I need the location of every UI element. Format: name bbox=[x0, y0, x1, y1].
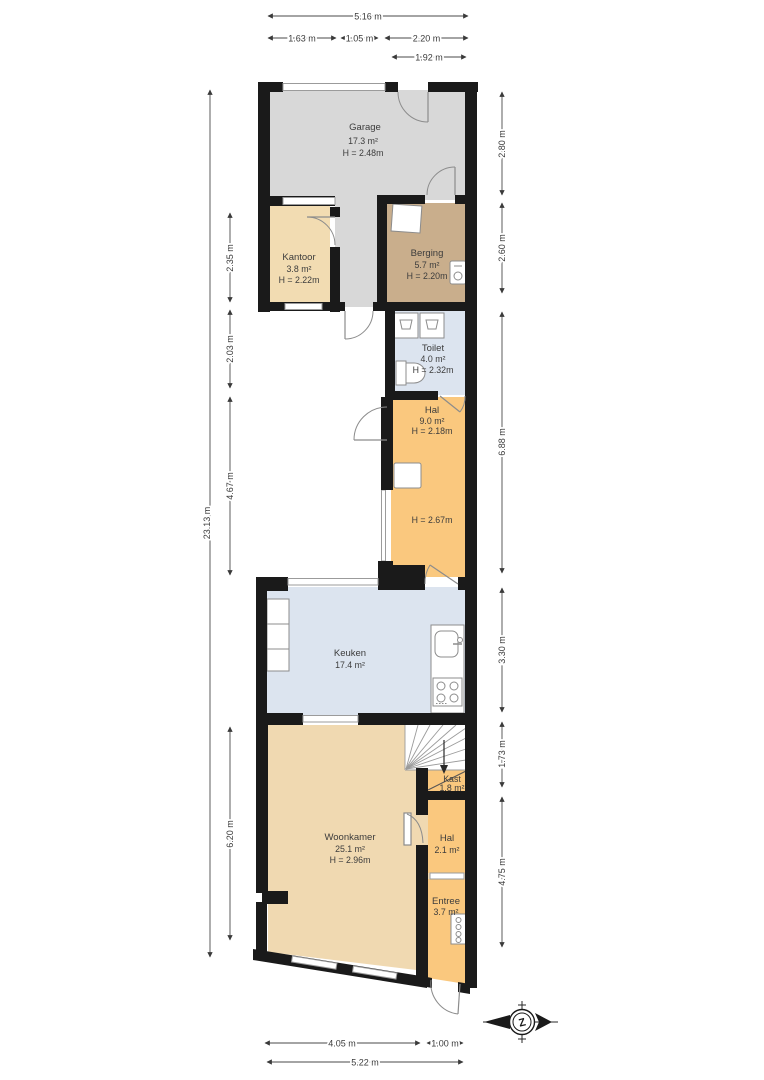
dim-top-2: 1.05 m bbox=[346, 34, 374, 44]
dim-bottom-total: 5.22 m bbox=[351, 1058, 379, 1068]
berging-skylight bbox=[391, 204, 422, 233]
kantoor-label: Kantoor bbox=[282, 252, 315, 263]
berging-area: 5.7 m² bbox=[415, 260, 440, 270]
garage-height: H = 2.48m bbox=[343, 148, 384, 158]
dim-left-4: 6.20 m bbox=[225, 820, 235, 848]
dimensions-bottom: 4.05 m 1.00 m 5.22 m bbox=[265, 1039, 463, 1068]
kantoor-area: 3.8 m² bbox=[287, 264, 312, 274]
garage-label: Garage bbox=[349, 122, 381, 133]
hal-side-glass-strip bbox=[382, 490, 386, 561]
garage-passage-floor bbox=[335, 195, 377, 307]
dim-left-1: 2.35 m bbox=[225, 244, 235, 272]
kantoor-top-window bbox=[283, 198, 335, 205]
dim-right-0: 2.80 m bbox=[497, 130, 507, 158]
berging-height: H = 2.20m bbox=[407, 271, 448, 281]
kantoor-bottom-window bbox=[285, 304, 322, 310]
meter-cupboard-icon bbox=[451, 914, 466, 944]
dimensions-right: 2.80 m 2.60 m 6.88 m 3.30 m 1.73 m 4.75 … bbox=[497, 92, 507, 947]
dim-bottom-1: 1.00 m bbox=[431, 1039, 459, 1049]
dimensions-top: 5.16 m 1.63 m 1.05 m 2.20 m 1.92 m bbox=[268, 12, 468, 63]
dim-right-1: 2.60 m bbox=[497, 234, 507, 262]
dimensions-left: 23.13 m 2.35 m 2.03 m 4.67 m 6.20 m bbox=[202, 90, 235, 957]
woonkamer-height: H = 2.96m bbox=[330, 855, 371, 865]
dim-left-2: 2.03 m bbox=[225, 335, 235, 363]
hal-boven-height: H = 2.18m bbox=[412, 426, 453, 436]
toilet-area: 4.0 m² bbox=[421, 354, 446, 364]
kitchen-counter bbox=[431, 625, 464, 713]
sink-icon bbox=[394, 313, 418, 338]
stove-icon bbox=[433, 678, 462, 706]
dim-top-4: 1.92 m bbox=[415, 53, 443, 63]
dim-top-total: 5.16 m bbox=[354, 12, 382, 22]
hal-cupboard bbox=[394, 463, 421, 488]
entree-area: 3.7 m² bbox=[434, 907, 459, 917]
dim-right-5: 4.75 m bbox=[497, 858, 507, 886]
woonkamer-area: 25.1 m² bbox=[335, 844, 365, 854]
passage-buiten-door bbox=[345, 311, 373, 339]
hal-entree-window bbox=[430, 873, 464, 879]
garage-area: 17.3 m² bbox=[348, 136, 378, 146]
hal-boven-height2: H = 2.67m bbox=[412, 515, 453, 525]
dim-right-3: 3.30 m bbox=[497, 636, 507, 664]
toilet-label: Toilet bbox=[422, 343, 445, 354]
keuken-woonkamer-window bbox=[303, 716, 358, 723]
kast-area: 1.8 m² bbox=[440, 783, 465, 793]
dim-top-3: 2.20 m bbox=[413, 34, 441, 44]
front-door bbox=[431, 980, 460, 1014]
woonkamer-label: Woonkamer bbox=[324, 832, 375, 843]
hal-boven-area: 9.0 m² bbox=[420, 416, 445, 426]
keuken-top-window bbox=[288, 579, 378, 586]
hal-boven-label: Hal bbox=[425, 405, 439, 416]
hal-beneden-area: 2.1 m² bbox=[435, 845, 460, 855]
garage-door-window bbox=[283, 84, 385, 91]
dim-left-total: 23.13 m bbox=[202, 507, 212, 540]
dim-bottom-0: 4.05 m bbox=[328, 1039, 356, 1049]
boiler-icon bbox=[450, 261, 466, 284]
hal-beneden-label: Hal bbox=[440, 833, 454, 844]
sink-icon-2 bbox=[420, 313, 444, 338]
entree-label: Entree bbox=[432, 896, 460, 907]
dim-left-3: 4.67 m bbox=[225, 472, 235, 500]
kantoor-height: H = 2.22m bbox=[279, 275, 320, 285]
floorplan-drawing: Garage 17.3 m² H = 2.48m Kantoor 3.8 m² … bbox=[0, 0, 764, 1080]
toilet-height: H = 2.32m bbox=[413, 365, 454, 375]
compass-icon: Z bbox=[483, 1001, 558, 1043]
keuken-area: 17.4 m² bbox=[335, 660, 365, 670]
berging-label: Berging bbox=[411, 248, 444, 259]
keuken-cabinets bbox=[267, 599, 289, 671]
dim-top-1: 1.63 m bbox=[288, 34, 316, 44]
dim-right-4: 1.73 m bbox=[497, 740, 507, 768]
dim-right-2: 6.88 m bbox=[497, 428, 507, 456]
floorplan-page: Garage 17.3 m² H = 2.48m Kantoor 3.8 m² … bbox=[0, 0, 764, 1080]
keuken-label: Keuken bbox=[334, 648, 366, 659]
